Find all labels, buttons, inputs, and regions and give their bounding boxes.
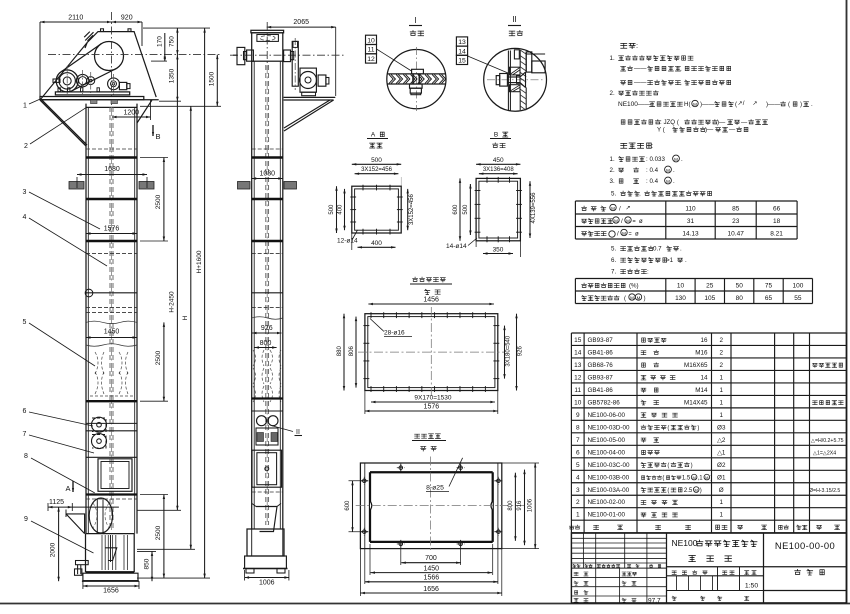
svg-text:5: 5 [576,462,580,469]
svg-text:)——: )—— [700,101,715,108]
svg-text:7.: 7. [611,269,616,276]
svg-text:13: 13 [574,362,582,369]
svg-text:6: 6 [23,408,27,415]
svg-text:7: 7 [23,431,27,438]
svg-text:△=H/0.2+5.75: △=H/0.2+5.75 [811,438,844,444]
svg-text:NE100-00-00: NE100-00-00 [775,540,835,551]
svg-text:NE100-04-00: NE100-04-00 [588,449,626,456]
svg-text:14-ø14: 14-ø14 [446,243,467,250]
svg-text:): ) [800,101,802,108]
svg-text:11: 11 [367,47,374,54]
svg-text:ø: ø [639,219,643,225]
svg-text:2.: 2. [610,90,615,97]
svg-text:——: —— [634,80,647,87]
svg-text:GB41-86: GB41-86 [588,349,614,356]
svg-text:H(: H( [684,101,691,108]
svg-text:.: . [685,257,687,264]
svg-text:M16X65: M16X65 [684,362,708,369]
svg-text:/: / [619,206,621,213]
svg-text:25: 25 [706,283,714,290]
svg-text:GB5782-86: GB5782-86 [588,399,621,406]
svg-text:50: 50 [736,283,744,290]
svg-text:.: . [673,167,675,174]
svg-text:10.47: 10.47 [728,231,745,238]
svg-text:1656: 1656 [103,588,119,595]
svg-text:2: 2 [24,143,28,150]
svg-text:1456: 1456 [423,297,439,304]
svg-text:700: 700 [425,555,437,562]
svg-text:14: 14 [574,349,582,356]
svg-text:M: M [705,475,708,480]
svg-text:2: 2 [719,362,723,369]
svg-text:H: H [182,315,189,320]
svg-text:16: 16 [700,337,708,344]
svg-text:100: 100 [792,283,803,290]
svg-text:NE100-06-00: NE100-06-00 [588,412,626,419]
svg-text:: 0.4: : 0.4 [646,167,659,174]
svg-text:2065: 2065 [293,19,309,26]
svg-text:80: 80 [736,295,744,302]
svg-text:1.: 1. [610,156,615,163]
svg-text:4: 4 [576,474,580,481]
svg-text:14: 14 [458,48,466,55]
svg-text:2500: 2500 [155,350,162,365]
svg-text:Y (: Y ( [657,127,666,134]
svg-text:NE100: NE100 [672,538,698,548]
svg-text:926: 926 [261,325,273,332]
svg-text:(%): (%) [629,283,639,290]
svg-text:6.: 6. [611,257,616,264]
svg-text:66: 66 [773,206,781,213]
svg-text:9X170=1530: 9X170=1530 [414,395,451,402]
svg-text:1030: 1030 [259,171,275,178]
svg-text:GB41-86: GB41-86 [588,387,614,394]
svg-text:3.: 3. [610,178,615,185]
svg-text:△1: △1 [717,449,726,456]
svg-text:2: 2 [719,349,723,356]
svg-text:(: ( [662,475,664,481]
svg-text:2500: 2500 [155,194,162,209]
svg-text:——: —— [634,66,647,73]
svg-text::: : [647,269,649,276]
svg-text:500: 500 [371,157,382,164]
svg-text:Ø2: Ø2 [717,462,726,469]
svg-text:110: 110 [685,206,696,213]
svg-text:B: B [494,132,498,139]
svg-text:—: — [729,127,736,134]
svg-text:)——: )—— [766,101,781,108]
svg-text:)—: )— [717,119,726,126]
svg-text:1576: 1576 [424,404,440,411]
svg-text:: 0.4: : 0.4 [646,178,659,185]
svg-text:880: 880 [337,346,343,357]
svg-text:31: 31 [687,218,695,225]
svg-text:M: M [626,218,630,223]
svg-text:3X152=456: 3X152=456 [409,194,415,226]
svg-text:M: M [666,168,670,173]
svg-text:M: M [614,218,618,223]
svg-text:1450: 1450 [424,565,440,572]
svg-text:=: = [633,219,636,225]
svg-text:1: 1 [23,103,27,110]
svg-text:NE100-03D-00: NE100-03D-00 [588,424,631,431]
svg-text:2: 2 [719,337,723,344]
svg-text:600: 600 [453,204,459,215]
svg-text:800: 800 [260,340,272,347]
svg-text:11: 11 [574,387,581,394]
svg-text:12-ø14: 12-ø14 [337,237,358,244]
svg-text:5.: 5. [611,191,616,198]
svg-text:85: 85 [732,206,740,213]
svg-text:1.5: 1.5 [682,475,691,481]
svg-text:1: 1 [719,499,723,506]
svg-text:1: 1 [719,387,723,394]
svg-text:M: M [692,475,695,480]
svg-text:75: 75 [765,283,773,290]
svg-text:.: . [673,178,675,185]
svg-text:105: 105 [704,295,715,302]
svg-text:NE100-01-00: NE100-01-00 [588,512,626,519]
svg-text:920: 920 [121,15,133,22]
svg-text:14: 14 [700,374,708,381]
svg-text:GB93-87: GB93-87 [588,337,614,344]
svg-text:400: 400 [371,240,382,247]
svg-text:I: I [414,16,416,25]
svg-text:600: 600 [345,500,351,511]
svg-text:65: 65 [765,295,773,302]
svg-text:M: M [611,206,615,211]
svg-text:Ø=H-3.15/2.5: Ø=H-3.15/2.5 [809,488,840,494]
svg-text:): ) [700,488,702,494]
svg-text:(: ( [667,488,669,494]
svg-text:(: ( [667,425,669,431]
svg-text:3: 3 [23,189,27,196]
svg-text:: JZQ (: : JZQ ( [660,119,680,126]
svg-text:1:50: 1:50 [745,582,758,589]
svg-text:926: 926 [517,346,523,357]
svg-text:H-2450: H-2450 [169,291,176,313]
svg-text:12: 12 [574,374,582,381]
svg-text:M: M [622,231,626,236]
svg-text:.: . [680,246,682,253]
svg-text:A: A [65,484,70,493]
svg-text:23: 23 [732,218,740,225]
svg-text:1: 1 [719,374,723,381]
svg-text:): ) [691,463,693,469]
svg-text:M16: M16 [695,349,708,356]
svg-text:M: M [666,179,670,184]
svg-text:2.5: 2.5 [684,488,693,494]
svg-text:12: 12 [367,56,375,63]
svg-text:350: 350 [493,247,504,254]
svg-text:8-ø25: 8-ø25 [426,485,444,492]
svg-text:1125: 1125 [49,499,64,506]
svg-text:400: 400 [337,204,343,215]
svg-text:2: 2 [576,499,580,506]
svg-text:1350: 1350 [169,68,176,83]
svg-text:Ø1: Ø1 [717,474,726,481]
svg-text:10: 10 [677,283,685,290]
svg-text::: : [636,41,638,50]
svg-text:1: 1 [719,512,723,519]
svg-text:GB93-87: GB93-87 [588,374,614,381]
svg-text:1656: 1656 [423,586,439,593]
svg-text:1500: 1500 [208,71,215,86]
svg-text:Ø: Ø [719,487,724,494]
svg-text:/: / [617,231,619,238]
svg-text:1576: 1576 [104,226,120,233]
svg-text:14.13: 14.13 [682,231,699,238]
svg-text:B: B [155,132,160,141]
svg-text:Ø3: Ø3 [717,424,726,431]
svg-text:97.7: 97.7 [648,598,661,605]
svg-text:M: M [693,102,697,107]
svg-text:,: , [680,67,681,73]
svg-text:=: = [629,232,632,238]
svg-text:8: 8 [24,453,28,460]
svg-text:GB68-76: GB68-76 [588,362,614,369]
svg-text:10: 10 [367,37,375,44]
svg-text:1.: 1. [610,55,615,62]
svg-text:3X180=540: 3X180=540 [506,335,512,367]
svg-text:55: 55 [794,295,802,302]
svg-text:130: 130 [675,295,686,302]
svg-text:): ) [697,425,699,431]
svg-text:NE100-05-00: NE100-05-00 [588,437,626,444]
svg-text:△1=△2X4: △1=△2X4 [813,450,836,456]
svg-text:916: 916 [517,500,523,511]
svg-text:(: ( [667,463,669,469]
svg-text:NE100-03B-00: NE100-03B-00 [588,474,630,481]
svg-text:A: A [371,132,376,139]
svg-text:4X139=556: 4X139=556 [531,192,537,224]
svg-text:850: 850 [144,558,151,569]
svg-text:0.7: 0.7 [653,246,662,253]
svg-text:NE100-03C-00: NE100-03C-00 [588,462,631,469]
svg-text:H+1600: H+1600 [196,250,203,273]
svg-text:M: M [674,157,678,162]
svg-text:5.: 5. [611,246,616,253]
svg-text:>1: >1 [666,257,674,264]
svg-text:15: 15 [574,337,582,344]
svg-text:13: 13 [458,39,466,46]
svg-text:18: 18 [773,218,781,225]
svg-text:450: 450 [493,157,504,164]
svg-text:800: 800 [508,500,514,511]
svg-text:2110: 2110 [68,15,83,22]
svg-text:1006: 1006 [528,498,534,512]
svg-text:6: 6 [576,449,580,456]
svg-text:: 0.033: : 0.033 [646,156,665,163]
svg-text:ø: ø [635,232,639,238]
svg-text::: : [651,141,653,150]
svg-text:1680: 1680 [104,166,120,173]
svg-text:△2: △2 [717,437,726,444]
svg-text:↗/: ↗/ [738,100,745,107]
svg-text:3X136=408: 3X136=408 [483,167,515,173]
svg-text:3X152=456: 3X152=456 [361,167,393,173]
svg-text:5: 5 [23,319,27,326]
svg-text:—: — [741,119,748,126]
svg-text:806: 806 [349,346,355,357]
svg-text:,: , [680,81,681,87]
svg-text:1: 1 [576,512,580,519]
svg-text:M: M [637,295,641,300]
svg-text:1566: 1566 [424,575,440,582]
svg-text:1450: 1450 [104,329,120,336]
svg-text:28-ø16: 28-ø16 [384,330,405,337]
svg-text:,: , [639,192,640,198]
svg-text:): ) [710,475,712,481]
svg-text:9: 9 [576,412,580,419]
svg-text:M14: M14 [695,387,708,394]
svg-text:,1: ,1 [698,475,704,481]
svg-text:)—: )— [705,127,714,134]
svg-text:2.: 2. [610,167,615,174]
svg-text:↗: ↗ [625,206,630,212]
svg-text:M: M [695,487,698,492]
svg-text:4: 4 [23,214,27,221]
svg-text:NE100-02-00: NE100-02-00 [588,499,626,506]
svg-text:↗: ↗ [752,100,757,107]
svg-text:9: 9 [24,516,28,523]
svg-text:15: 15 [458,58,466,65]
svg-text:M14X45: M14X45 [684,399,708,406]
svg-text:): ) [644,295,646,302]
svg-text:170: 170 [157,36,164,47]
svg-text:.: . [811,101,813,108]
svg-text:.: . [681,156,683,163]
svg-text:500: 500 [463,204,469,215]
svg-text:1: 1 [719,412,723,419]
svg-text:500: 500 [329,204,335,215]
svg-text:NE100——: NE100—— [618,101,651,108]
svg-text:8.21: 8.21 [770,231,783,238]
svg-text:1006: 1006 [259,580,275,587]
svg-text:10: 10 [574,399,582,406]
svg-text:M: M [630,295,634,300]
svg-text:NE100-03A-00: NE100-03A-00 [588,487,630,494]
svg-text:7: 7 [576,437,580,444]
svg-text:2000: 2000 [50,542,57,557]
svg-text:1: 1 [719,399,723,406]
svg-text:3: 3 [576,487,580,494]
svg-text:/: / [621,218,623,225]
svg-text:II: II [512,15,516,24]
svg-text:8: 8 [576,424,580,431]
svg-text:II: II [296,429,300,436]
svg-text:2500: 2500 [155,525,162,540]
svg-text:750: 750 [169,36,176,47]
